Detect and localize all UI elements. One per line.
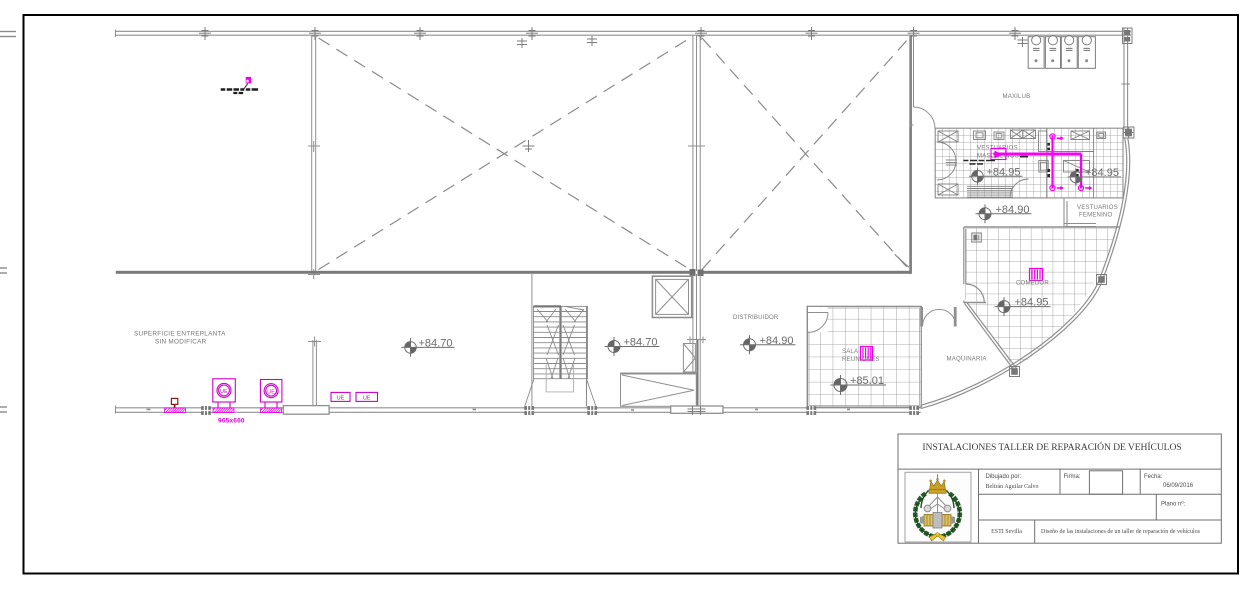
svg-text:UE: UE (267, 389, 275, 395)
svg-text:+84.95: +84.95 (1015, 297, 1049, 309)
svg-text:Plano nº:: Plano nº: (1161, 501, 1186, 508)
svg-text:UE: UE (363, 395, 371, 401)
svg-text:INSTALACIONES TALLER DE REPARA: INSTALACIONES TALLER DE REPARACIÓN DE VE… (922, 441, 1181, 453)
svg-text:+84.95: +84.95 (1085, 167, 1119, 179)
svg-text:ESTI Sevilla: ESTI Sevilla (991, 529, 1022, 535)
svg-text:+84.90: +84.90 (996, 204, 1030, 216)
svg-text:06/09/2016: 06/09/2016 (1163, 483, 1194, 489)
svg-text:MAQUINARIA: MAQUINARIA (947, 356, 988, 363)
svg-text:VESTUARIOS: VESTUARIOS (1077, 204, 1118, 211)
svg-text:Diseño de las instalaciones de: Diseño de las instalaciones de un taller… (1041, 529, 1201, 535)
svg-text:COMEDOR: COMEDOR (1016, 280, 1049, 287)
svg-text:+84.95: +84.95 (987, 166, 1021, 178)
svg-text:DISTRIBUIDOR: DISTRIBUIDOR (733, 314, 779, 321)
svg-text:Fecha:: Fecha: (1144, 474, 1163, 480)
svg-text:SALA: SALA (842, 348, 859, 355)
svg-text:SUPERFICIE ENTREPLANTA: SUPERFICIE ENTREPLANTA (134, 331, 226, 338)
svg-text:UE: UE (220, 389, 228, 395)
svg-text:+84.90: +84.90 (760, 335, 794, 347)
svg-text:+84.70: +84.70 (419, 337, 453, 349)
svg-text:MAXILUB: MAXILUB (1003, 93, 1031, 100)
svg-text:+85.01: +85.01 (850, 375, 884, 387)
svg-text:Dibujado por:: Dibujado por: (986, 474, 1022, 480)
svg-text:965x660: 965x660 (218, 418, 245, 425)
svg-text:SIN MODIFICAR: SIN MODIFICAR (155, 339, 207, 346)
svg-text:Beltrán Aguilar Calvo: Beltrán Aguilar Calvo (986, 484, 1039, 490)
svg-text:UE: UE (337, 395, 345, 401)
svg-text:Firma:: Firma: (1064, 474, 1081, 480)
svg-text:FEMENINO: FEMENINO (1079, 212, 1112, 219)
svg-text:+84.70: +84.70 (624, 337, 658, 349)
